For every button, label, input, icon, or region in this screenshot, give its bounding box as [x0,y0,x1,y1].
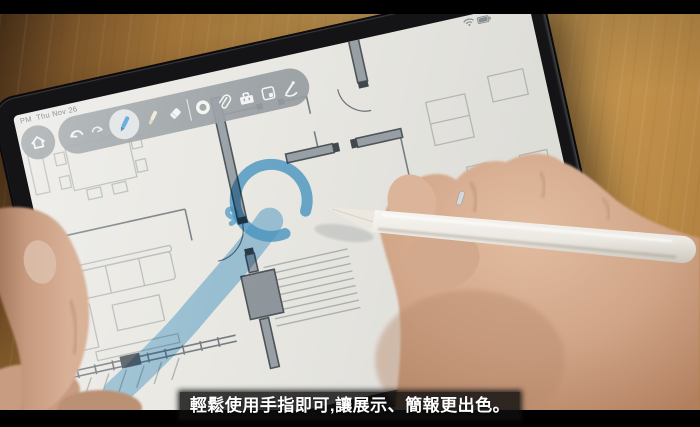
toolbox-icon [236,87,257,107]
marker-tool-button[interactable] [142,107,163,128]
export-icon [258,82,278,102]
touch-draw-button[interactable] [280,77,301,97]
paperclip-icon [214,92,234,112]
undo-icon [66,125,87,145]
eraser-tool-button[interactable] [164,102,185,123]
redo-button[interactable] [89,122,107,139]
letterbox-top [0,0,700,14]
blue-squiggle-stroke [227,208,239,224]
redo-icon [89,122,107,139]
export-button[interactable] [258,82,278,102]
hand-draw-icon [280,77,301,97]
home-icon [27,132,48,153]
pen-icon [112,112,136,136]
video-frame: PM Thu Nov 26 [0,0,700,427]
toolbox-button[interactable] [236,87,257,107]
pen-tool-button-selected[interactable] [106,106,142,142]
shape-ring-button[interactable] [193,97,213,117]
subtitle-caption: 輕鬆使用手指即可,讓展示、簡報更出色。 [180,392,520,419]
eraser-icon [164,102,185,123]
toolbar-divider [186,99,192,121]
undo-button[interactable] [66,125,87,145]
attachment-button[interactable] [214,92,234,112]
marker-icon [142,107,163,128]
photo-scene: PM Thu Nov 26 [0,14,700,410]
ring-icon [193,97,213,117]
